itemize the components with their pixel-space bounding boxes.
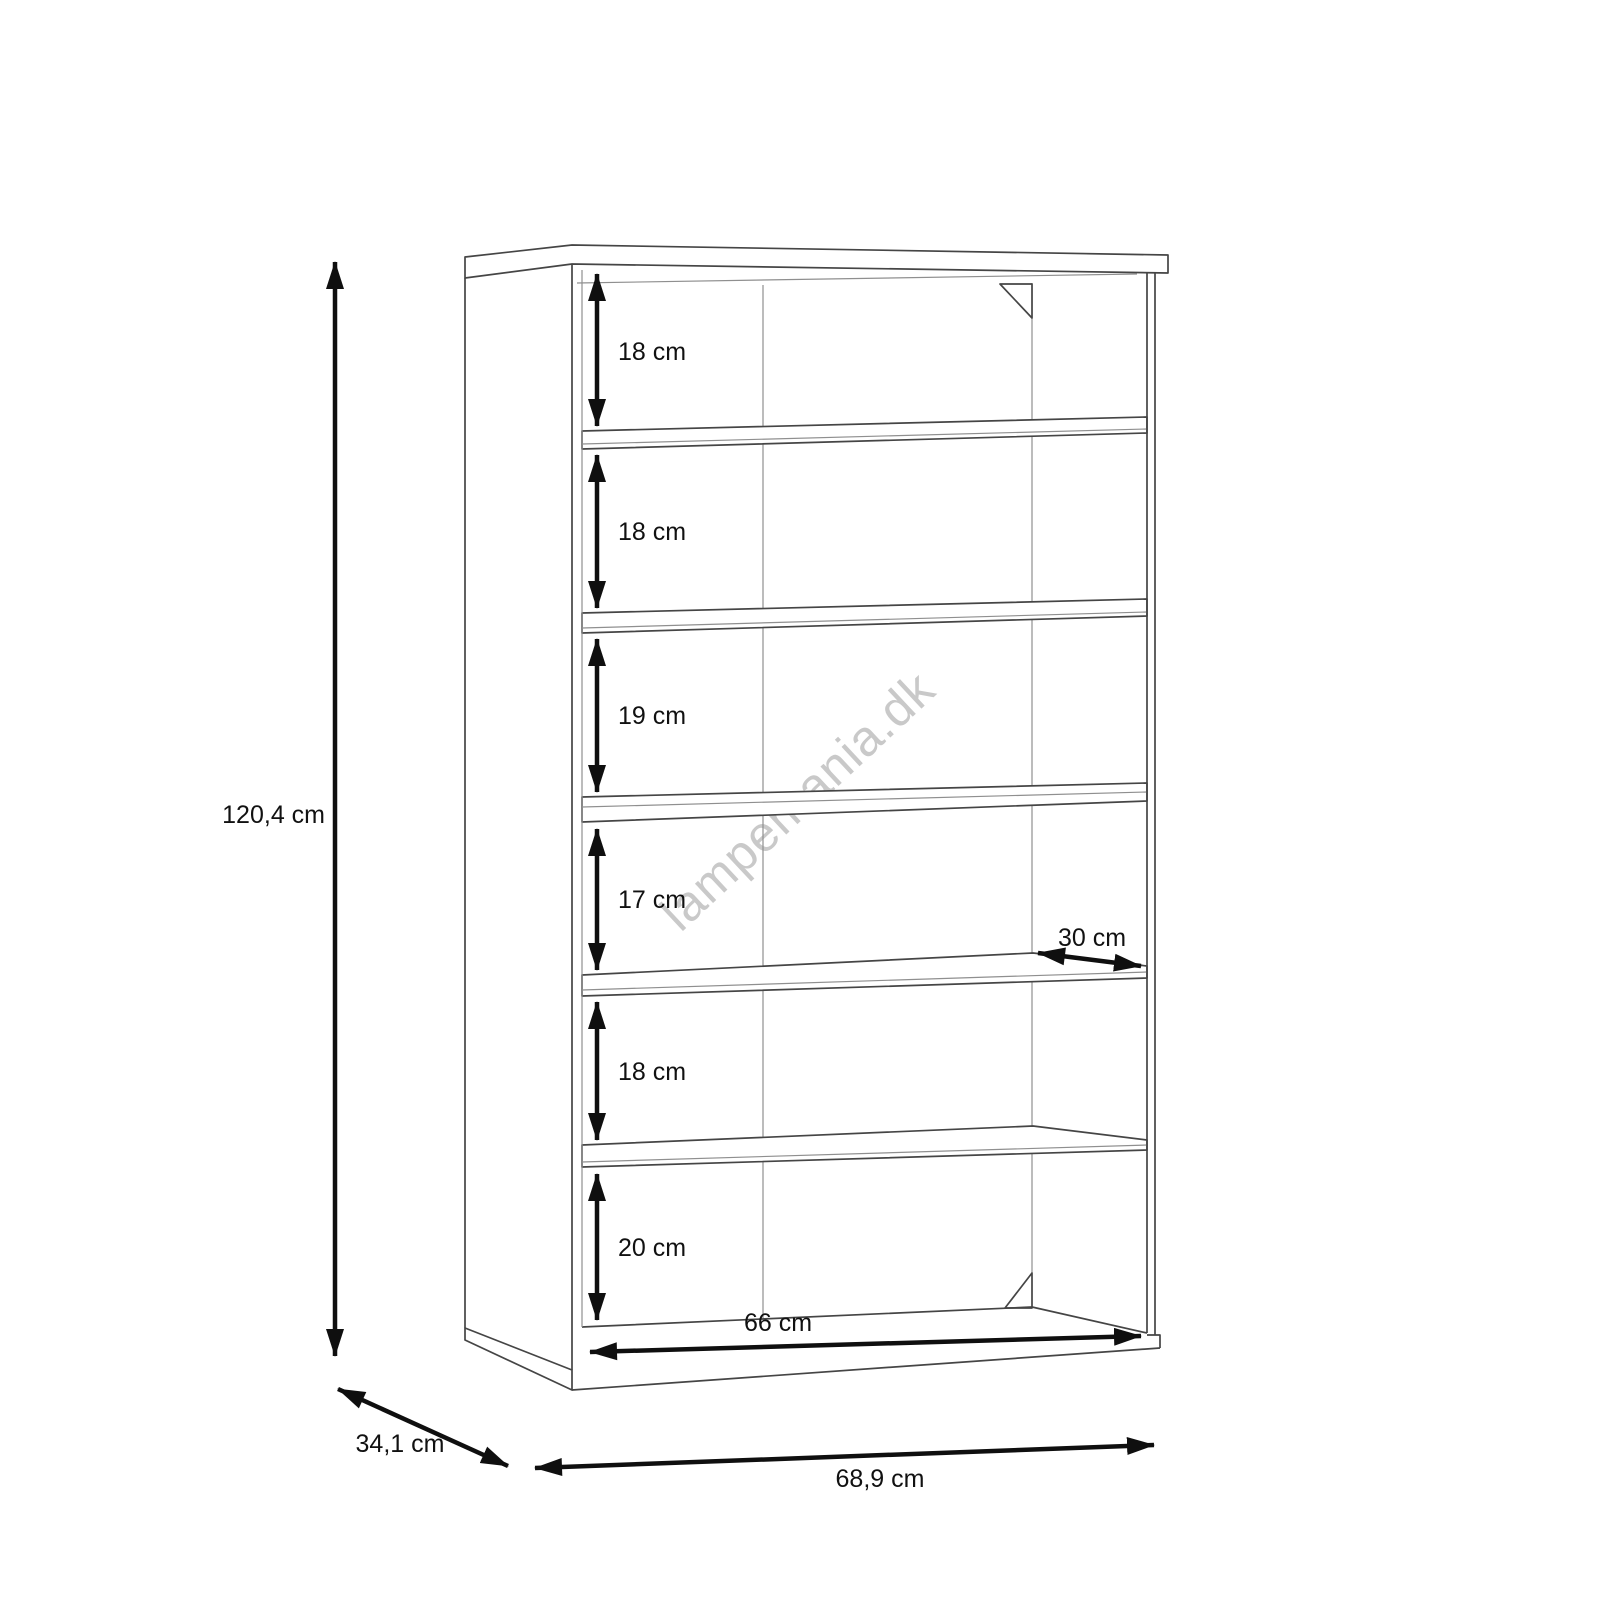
right-base-cap: [1147, 1335, 1160, 1348]
diagram-canvas: lampemania.dk: [0, 0, 1600, 1600]
compartment-label-2: 18 cm: [618, 518, 686, 546]
height-dimension-label: 120,4 cm: [222, 801, 325, 829]
compartment-label-5: 18 cm: [618, 1058, 686, 1086]
base-bottom-edge: [572, 1348, 1160, 1390]
compartment-dimension-1: 18 cm: [597, 274, 686, 426]
shelf-1: [582, 417, 1147, 449]
shelf-3: [582, 783, 1147, 822]
shelf-2: [582, 599, 1147, 633]
shelf-depth-label: 30 cm: [1058, 924, 1126, 952]
compartment-dimension-5: 18 cm: [597, 1002, 686, 1140]
compartment-dimension-2: 18 cm: [597, 455, 686, 608]
compartment-label-1: 18 cm: [618, 338, 686, 366]
height-dimension: 120,4 cm: [222, 262, 335, 1356]
dimension-diagram: lampemania.dk: [0, 0, 1600, 1600]
compartment-label-4: 17 cm: [618, 886, 686, 914]
width-dimension-label: 68,9 cm: [836, 1465, 925, 1493]
top-panel: [465, 245, 1168, 278]
bottom-corner-brace: [1005, 1273, 1032, 1308]
left-bottom-edge: [465, 1328, 572, 1390]
depth-dimension-label: 34,1 cm: [356, 1430, 445, 1458]
compartment-dimension-3: 19 cm: [597, 639, 686, 792]
inner-width-dimension: 66 cm: [590, 1309, 1141, 1352]
width-dimension: 68,9 cm: [535, 1445, 1154, 1493]
inner-width-label: 66 cm: [744, 1309, 812, 1337]
inner-width-line: [590, 1336, 1141, 1352]
compartment-dimension-4: 17 cm: [597, 829, 686, 970]
depth-dimension: 34,1 cm: [338, 1389, 508, 1466]
compartment-label-6: 20 cm: [618, 1234, 686, 1262]
compartment-dimension-6: 20 cm: [597, 1174, 686, 1320]
top-corner-brace: [1000, 284, 1032, 318]
left-side-panel: [465, 264, 582, 1390]
back-top-edge: [577, 274, 1137, 283]
shelf-4: [582, 953, 1147, 996]
right-side-panel: [1147, 262, 1160, 1348]
shelf-5: [582, 1126, 1147, 1167]
compartment-label-3: 19 cm: [618, 702, 686, 730]
bottom-panel-edge: [582, 1307, 1147, 1333]
